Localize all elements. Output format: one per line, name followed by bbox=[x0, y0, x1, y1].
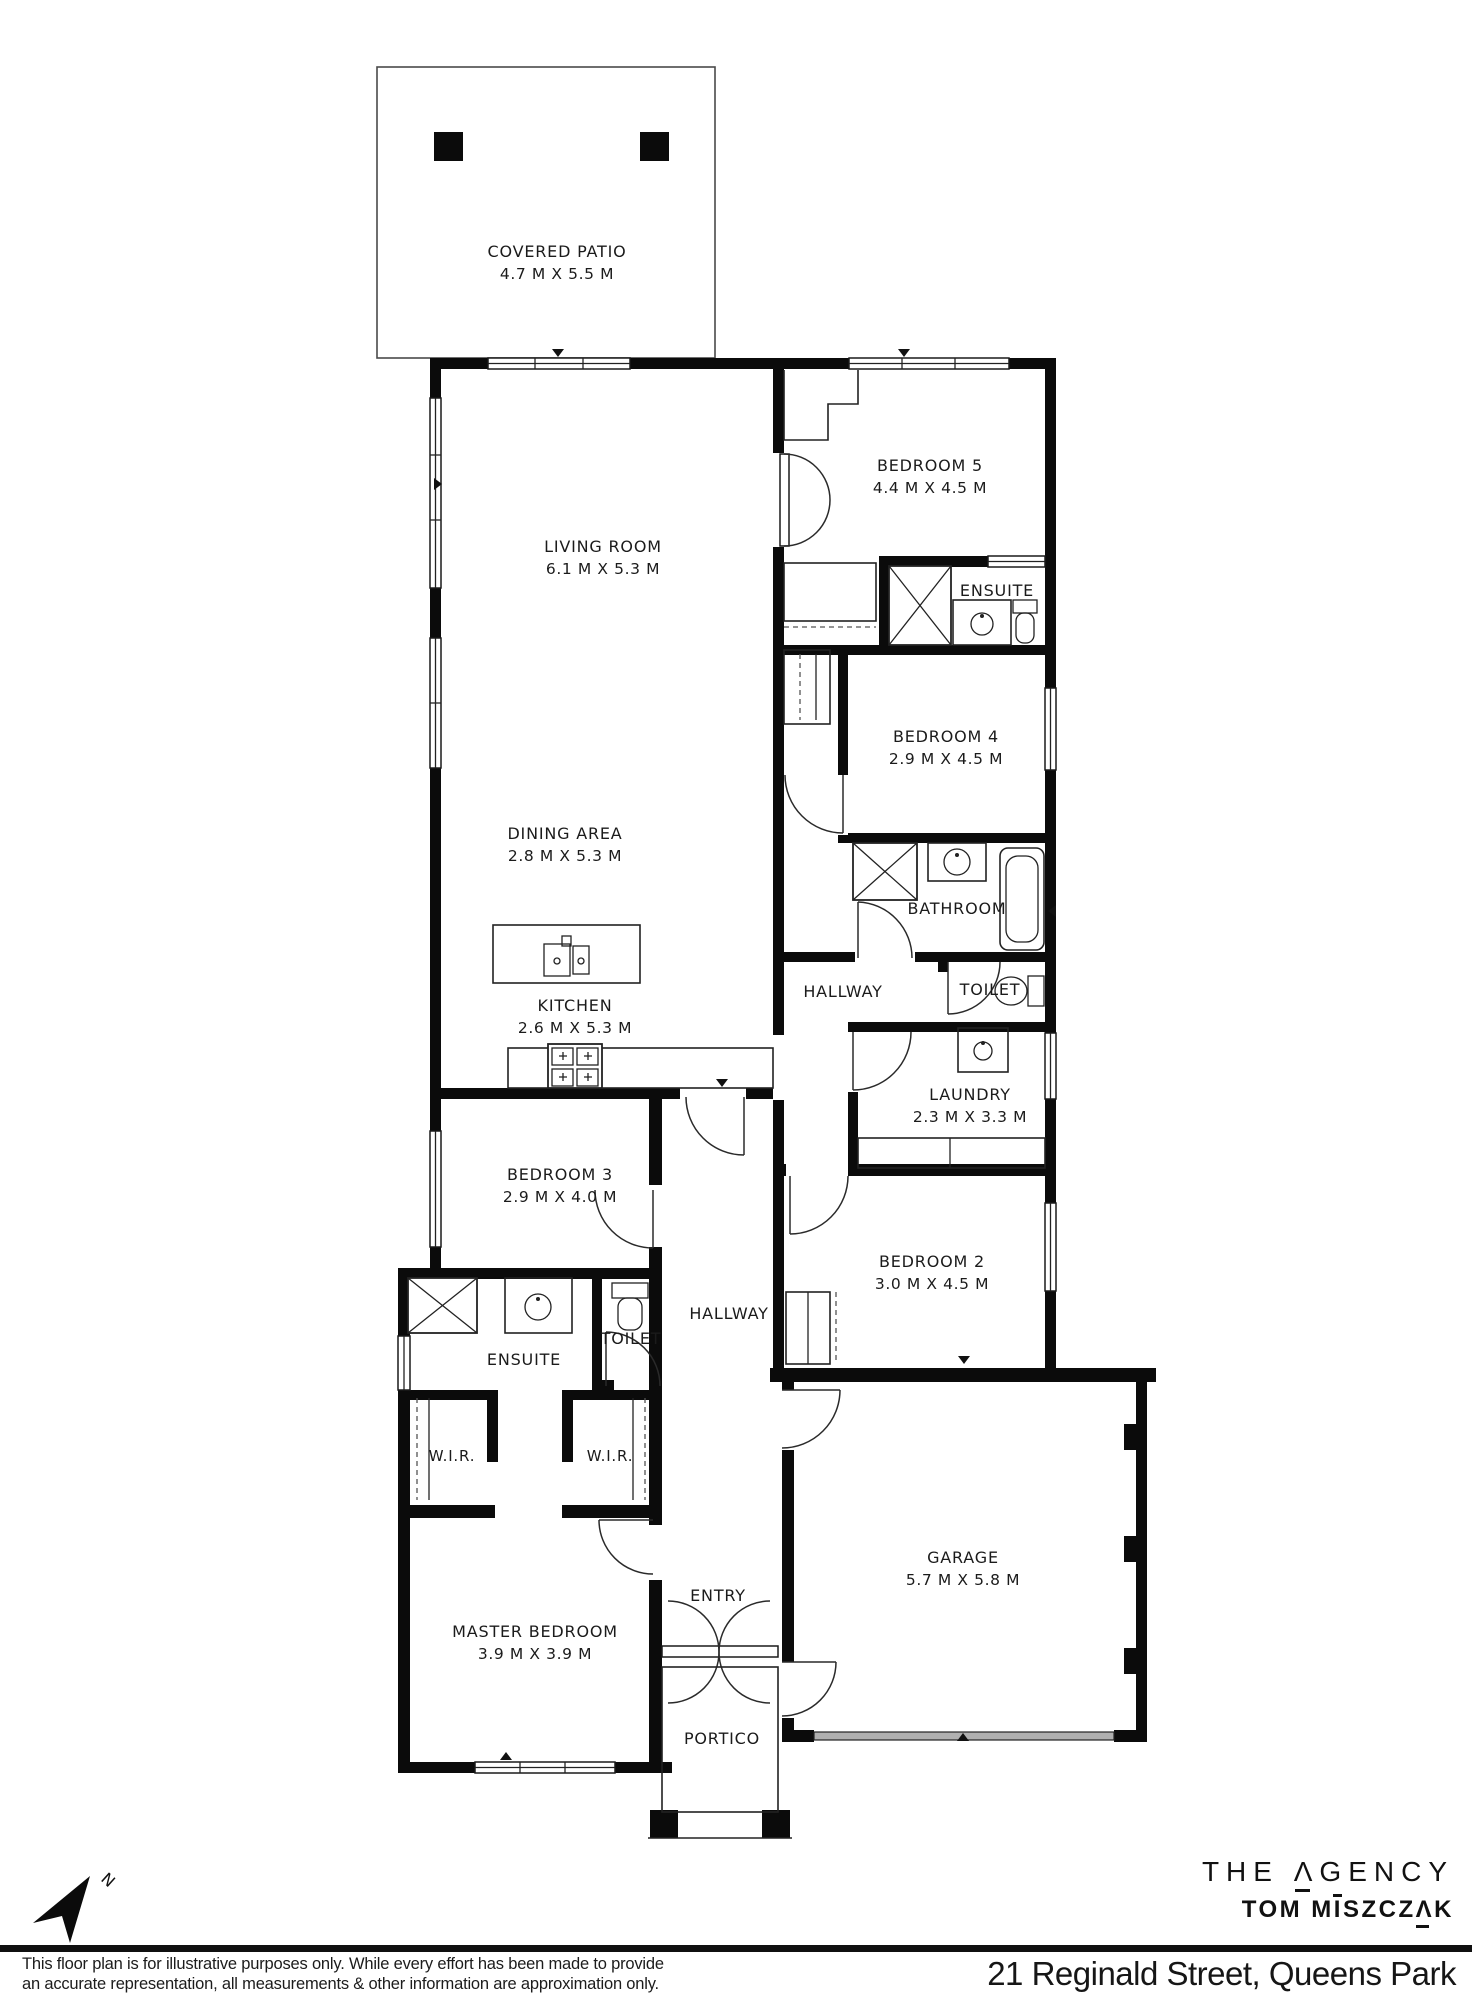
toilet-fixture bbox=[1013, 600, 1037, 643]
portico-post bbox=[762, 1810, 790, 1838]
room-label-bedroom-5: BEDROOM 5 bbox=[877, 456, 983, 475]
room-label-kitchen: KITCHEN bbox=[538, 996, 613, 1015]
cooktop bbox=[548, 1044, 602, 1088]
room-label-ensuite-master: ENSUITE bbox=[487, 1350, 561, 1369]
room-label-dining: DINING AREA bbox=[507, 824, 622, 843]
room-label-living: LIVING ROOM bbox=[544, 537, 662, 556]
room-label-wir-left: W.I.R. bbox=[429, 1447, 476, 1465]
room-label-hallway-lower: HALLWAY bbox=[689, 1304, 768, 1323]
window bbox=[1045, 688, 1056, 770]
bedroom4-closet bbox=[784, 650, 830, 724]
window bbox=[988, 556, 1045, 567]
room-label-covered-patio: COVERED PATIO bbox=[488, 242, 627, 261]
room-dims-living: 6.1 M X 5.3 M bbox=[546, 560, 660, 578]
entry-double-door bbox=[662, 1601, 778, 1703]
property-address: 21 Reginald Street, Queens Park bbox=[987, 1955, 1456, 1993]
room-label-bedroom-3: BEDROOM 3 bbox=[507, 1165, 613, 1184]
agency-logo: THE ΛGENCY TOM MISZCZΛK bbox=[1202, 1856, 1454, 1924]
bathtub bbox=[1000, 848, 1044, 950]
window bbox=[430, 1131, 441, 1247]
vanity-sink bbox=[953, 600, 1011, 645]
room-label-garage: GARAGE bbox=[927, 1548, 999, 1567]
logo-lambda: Λ bbox=[1294, 1856, 1320, 1888]
room-labels: COVERED PATIO 4.7 M X 5.5 M LIVING ROOM … bbox=[429, 242, 1034, 1748]
hallway-door bbox=[686, 1097, 744, 1155]
agency-logo-line2: TOM MISZCZΛK bbox=[1202, 1896, 1454, 1924]
room-dims-kitchen: 2.6 M X 5.3 M bbox=[518, 1019, 632, 1037]
garage-pilaster bbox=[1124, 1648, 1136, 1674]
bedroom2-robe bbox=[786, 1292, 836, 1364]
window bbox=[430, 638, 441, 768]
window bbox=[430, 398, 441, 588]
bedroom2-door bbox=[790, 1176, 848, 1234]
vanity-sink bbox=[928, 843, 986, 881]
bathroom-door bbox=[858, 902, 912, 958]
logo-text: TOM M bbox=[1242, 1896, 1334, 1923]
shower bbox=[853, 843, 917, 900]
window bbox=[488, 358, 630, 369]
logo-text: GENCY bbox=[1319, 1856, 1454, 1887]
window bbox=[398, 1336, 410, 1390]
window bbox=[475, 1762, 615, 1773]
patio-post bbox=[434, 132, 463, 161]
room-dims-bedroom-3: 2.9 M X 4.0 M bbox=[503, 1188, 617, 1206]
room-label-laundry: LAUNDRY bbox=[929, 1085, 1011, 1104]
shower bbox=[889, 566, 951, 645]
logo-text: K bbox=[1434, 1896, 1454, 1923]
room-label-bedroom-4: BEDROOM 4 bbox=[893, 727, 999, 746]
room-dims-bedroom-5: 4.4 M X 4.5 M bbox=[873, 479, 987, 497]
window bbox=[1045, 1033, 1056, 1099]
laundry-tub bbox=[958, 1028, 1008, 1072]
room-label-hallway-upper: HALLWAY bbox=[803, 982, 882, 1001]
room-label-ensuite-5: ENSUITE bbox=[960, 581, 1034, 600]
bedroom5-double-door bbox=[780, 454, 830, 546]
north-label: N bbox=[97, 1869, 119, 1891]
garage-pilaster bbox=[1124, 1424, 1136, 1450]
master-door bbox=[599, 1520, 653, 1574]
kitchen-island bbox=[493, 925, 640, 983]
laundry-bench bbox=[858, 1138, 1045, 1168]
room-dims-master: 3.9 M X 3.9 M bbox=[478, 1645, 592, 1663]
room-dims-laundry: 2.3 M X 3.3 M bbox=[913, 1108, 1027, 1126]
room-label-wir-right: W.I.R. bbox=[587, 1447, 634, 1465]
agency-logo-line1: THE ΛGENCY bbox=[1202, 1856, 1454, 1888]
disclaimer-text: This floor plan is for illustrative purp… bbox=[22, 1954, 802, 1994]
footer-divider bbox=[0, 1945, 1472, 1952]
logo-text: SZCZ bbox=[1343, 1896, 1416, 1923]
floor-plan: COVERED PATIO 4.7 M X 5.5 M LIVING ROOM … bbox=[0, 0, 1472, 1945]
bedroom4-door bbox=[785, 775, 843, 833]
room-dims-covered-patio: 4.7 M X 5.5 M bbox=[500, 265, 614, 283]
laundry-door bbox=[853, 1032, 911, 1090]
north-arrow-icon: N bbox=[33, 1869, 119, 1943]
logo-text: THE bbox=[1202, 1856, 1294, 1887]
garage-pilaster bbox=[1124, 1536, 1136, 1562]
room-label-toilet-upper: TOILET bbox=[959, 980, 1021, 999]
toilet-fixture bbox=[612, 1283, 648, 1330]
room-label-entry: ENTRY bbox=[690, 1586, 746, 1605]
shower bbox=[408, 1278, 477, 1333]
room-label-master: MASTER BEDROOM bbox=[452, 1622, 618, 1641]
room-label-toilet-mid: TOILET bbox=[600, 1329, 662, 1348]
room-dims-bedroom-4: 2.9 M X 4.5 M bbox=[889, 750, 1003, 768]
room-label-portico: PORTICO bbox=[684, 1729, 760, 1748]
disclaimer-line-2: an accurate representation, all measurem… bbox=[22, 1974, 802, 1994]
bedroom5-wardrobe bbox=[784, 370, 858, 440]
room-dims-garage: 5.7 M X 5.8 M bbox=[906, 1571, 1020, 1589]
bedroom5-robe bbox=[784, 563, 876, 627]
patio-post bbox=[640, 132, 669, 161]
room-dims-bedroom-2: 3.0 M X 4.5 M bbox=[875, 1275, 989, 1293]
covered-patio-structure bbox=[377, 67, 715, 358]
portico-post bbox=[650, 1810, 678, 1838]
disclaimer-line-1: This floor plan is for illustrative purp… bbox=[22, 1954, 802, 1974]
room-dims-dining: 2.8 M X 5.3 M bbox=[508, 847, 622, 865]
window bbox=[849, 358, 1009, 369]
logo-lambda: Λ bbox=[1416, 1896, 1435, 1924]
room-label-bathroom: BATHROOM bbox=[908, 899, 1007, 918]
window bbox=[1045, 1203, 1056, 1291]
room-label-bedroom-2: BEDROOM 2 bbox=[879, 1252, 985, 1271]
vanity-sink bbox=[505, 1278, 572, 1333]
logo-i-overbar: I bbox=[1334, 1896, 1343, 1924]
portico-structure bbox=[648, 1667, 792, 1838]
